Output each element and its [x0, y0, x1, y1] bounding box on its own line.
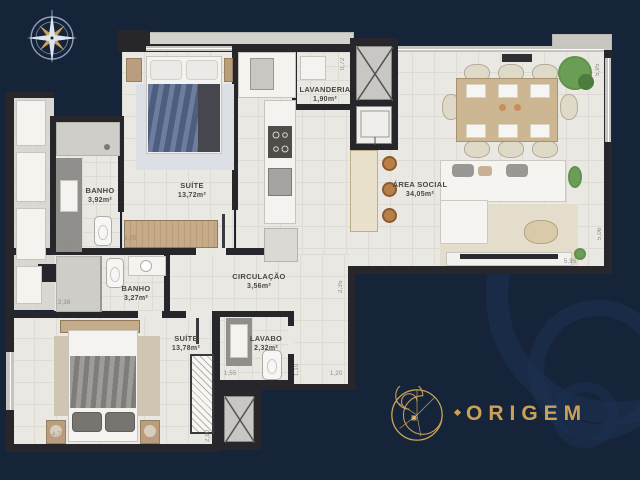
plant	[578, 74, 594, 90]
door-opening	[186, 311, 212, 318]
room-name: ÁREA SOCIAL	[375, 180, 465, 190]
wall	[6, 92, 14, 318]
placemat	[498, 124, 518, 138]
room-label-bathroom-2: BANHO 3,27m²	[91, 284, 181, 303]
dimension-label: 1,20	[330, 371, 342, 377]
window	[605, 58, 611, 142]
ac-unit	[16, 266, 42, 304]
washer	[300, 56, 326, 80]
room-label-powder-room: LAVABO 2,32m²	[221, 334, 311, 353]
wall	[348, 266, 612, 274]
dimension-label: 2,35	[338, 273, 344, 293]
pillow	[186, 60, 218, 80]
shaft-x	[224, 396, 254, 442]
wall	[348, 272, 355, 390]
room-area: 13,72m²	[147, 191, 237, 200]
dimension-label: 1,55	[224, 371, 236, 377]
ac-unit	[16, 100, 46, 146]
placemat	[466, 124, 486, 138]
plant	[568, 166, 582, 188]
room-name: CIRCULAÇÃO	[214, 272, 304, 282]
kitchen-island	[350, 150, 378, 232]
wardrobe	[124, 220, 218, 248]
shower	[56, 122, 120, 156]
window	[146, 46, 232, 51]
room-area: 3,27m²	[91, 294, 181, 303]
compass-rose-icon	[22, 8, 82, 68]
cooktop	[268, 126, 292, 158]
kitchen-counter	[264, 100, 296, 224]
room-label-social-area: ÁREA SOCIAL 34,05m²	[375, 180, 465, 199]
placemat	[530, 84, 550, 98]
nautilus-watermark	[380, 240, 640, 480]
shower-head-icon	[104, 144, 110, 150]
brand-logo-text: ORIGEM	[466, 402, 587, 426]
blanket	[70, 356, 136, 408]
centerpiece	[499, 104, 506, 111]
nightstand	[224, 58, 233, 82]
placemat	[530, 124, 550, 138]
stool	[382, 156, 397, 171]
dimension-label: 3,05	[124, 236, 136, 242]
room-label-suite-2: SUÍTE 13,78m²	[141, 334, 231, 353]
kitchen-sink	[250, 58, 274, 90]
dimension-label: 1,40	[58, 241, 70, 247]
room-area: 2,32m²	[221, 344, 311, 353]
dimension-label: 5,06	[597, 218, 603, 240]
dining-chair	[560, 94, 578, 120]
ac-unit	[16, 152, 46, 202]
nightstand	[126, 58, 142, 82]
dimension-label: 5,95	[564, 259, 576, 265]
placemat	[466, 84, 486, 98]
dimension-label: 0,72	[340, 54, 346, 70]
room-area: 34,05m²	[375, 190, 465, 199]
dimension-label: 2,90	[205, 420, 211, 442]
pillow	[72, 412, 102, 432]
window	[6, 352, 14, 410]
pillow	[105, 412, 135, 432]
room-area: 1,90m²	[280, 95, 370, 104]
room-area: 3,56m²	[214, 282, 304, 291]
oven	[268, 168, 292, 196]
window	[396, 46, 604, 52]
door-leaf	[222, 214, 225, 248]
ac-unit	[16, 208, 46, 260]
sofa-pillow	[506, 164, 528, 177]
wall	[220, 311, 294, 317]
wall	[6, 444, 220, 452]
door-opening	[138, 311, 162, 318]
coffee-table	[524, 220, 558, 244]
wall	[292, 104, 356, 110]
throw-blanket	[198, 84, 220, 152]
wall	[6, 248, 294, 255]
sliding-door-track	[502, 54, 532, 62]
toilet	[94, 216, 112, 246]
dimension-label: 2,38	[58, 300, 70, 306]
dimension-label: 5,95	[595, 56, 601, 76]
room-name: BANHO	[55, 186, 145, 196]
room-area: 13,78m²	[141, 344, 231, 353]
tv	[460, 254, 558, 259]
room-label-laundry: LAVANDERIA 1,90m²	[280, 85, 370, 104]
room-name: BANHO	[91, 284, 181, 294]
centerpiece	[514, 104, 521, 111]
sofa-pillow	[478, 166, 492, 176]
room-label-bathroom-1: BANHO 3,92m²	[55, 186, 145, 205]
blanket	[148, 84, 198, 152]
room-label-suite-1: SUÍTE 13,72m²	[147, 181, 237, 200]
sink-basin	[140, 260, 152, 272]
placemat	[498, 84, 518, 98]
fridge	[264, 228, 298, 262]
dimension-label: 1,10	[294, 356, 300, 376]
room-area: 3,92m²	[55, 196, 145, 205]
sofa-pillow	[452, 164, 474, 177]
elevator-cab	[356, 106, 392, 144]
nautilus-shell-logo-icon	[388, 386, 446, 444]
dimension-label: 4,75	[52, 432, 64, 438]
room-name: LAVABO	[221, 334, 311, 344]
pillow	[150, 60, 182, 80]
toilet	[262, 350, 282, 380]
room-label-hallway: CIRCULAÇÃO 3,56m²	[214, 272, 304, 291]
dining-chair	[498, 140, 524, 158]
sofa-chaise	[440, 200, 488, 244]
door-opening	[196, 248, 226, 255]
dining-chair	[532, 140, 558, 158]
stool	[382, 208, 397, 223]
room-name: SUÍTE	[147, 181, 237, 191]
dining-chair	[464, 140, 490, 158]
room-name: SUÍTE	[141, 334, 231, 344]
room-name: LAVANDERIA	[280, 85, 370, 95]
nightstand-rug	[144, 425, 156, 437]
